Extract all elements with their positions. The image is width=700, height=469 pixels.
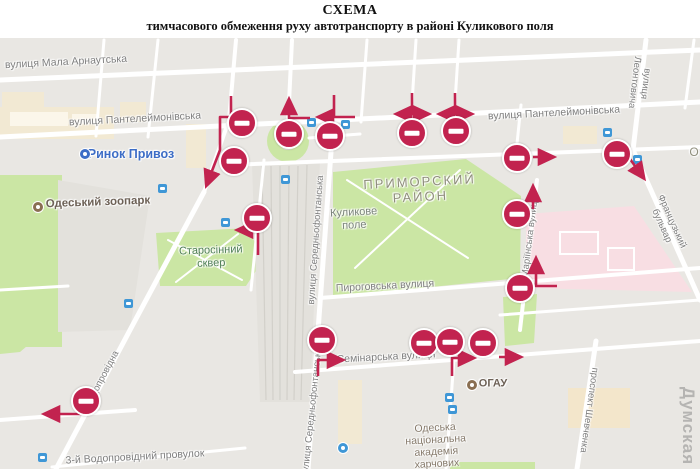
- no-entry-sign: [602, 139, 632, 169]
- no-entry-bar: [510, 212, 525, 217]
- no-entry-sign: [502, 143, 532, 173]
- no-entry-sign: [227, 108, 257, 138]
- no-entry-sign: [502, 199, 532, 229]
- no-entry-bar: [476, 341, 491, 346]
- no-entry-sign: [71, 386, 101, 416]
- no-entry-bar: [227, 159, 242, 164]
- no-entry-sign: [441, 116, 471, 146]
- no-entry-signs-layer: [0, 0, 700, 469]
- no-entry-bar: [443, 340, 458, 345]
- scheme-title: СХЕМА: [0, 0, 700, 19]
- no-entry-bar: [282, 132, 297, 137]
- no-entry-bar: [79, 399, 94, 404]
- no-entry-sign: [274, 119, 304, 149]
- no-entry-sign: [242, 203, 272, 233]
- traffic-scheme-map: вулиця Мала Арнаутськавулиця Пантелеймон…: [0, 0, 700, 469]
- no-entry-bar: [510, 156, 525, 161]
- no-entry-sign: [307, 325, 337, 355]
- no-entry-bar: [610, 152, 625, 157]
- no-entry-sign: [397, 118, 427, 148]
- no-entry-bar: [405, 131, 420, 136]
- no-entry-sign: [468, 328, 498, 358]
- no-entry-bar: [323, 134, 338, 139]
- no-entry-bar: [449, 129, 464, 134]
- no-entry-sign: [435, 327, 465, 357]
- no-entry-bar: [235, 121, 250, 126]
- no-entry-sign: [219, 146, 249, 176]
- no-entry-bar: [417, 341, 432, 346]
- no-entry-bar: [250, 216, 265, 221]
- no-entry-sign: [505, 273, 535, 303]
- watermark: Думская: [678, 387, 698, 465]
- no-entry-bar: [513, 286, 528, 291]
- no-entry-sign: [315, 121, 345, 151]
- title-band: СХЕМА тимчасового обмеження руху автотра…: [0, 0, 700, 38]
- no-entry-bar: [315, 338, 330, 343]
- scheme-subtitle: тимчасового обмеження руху автотранспорт…: [0, 19, 700, 34]
